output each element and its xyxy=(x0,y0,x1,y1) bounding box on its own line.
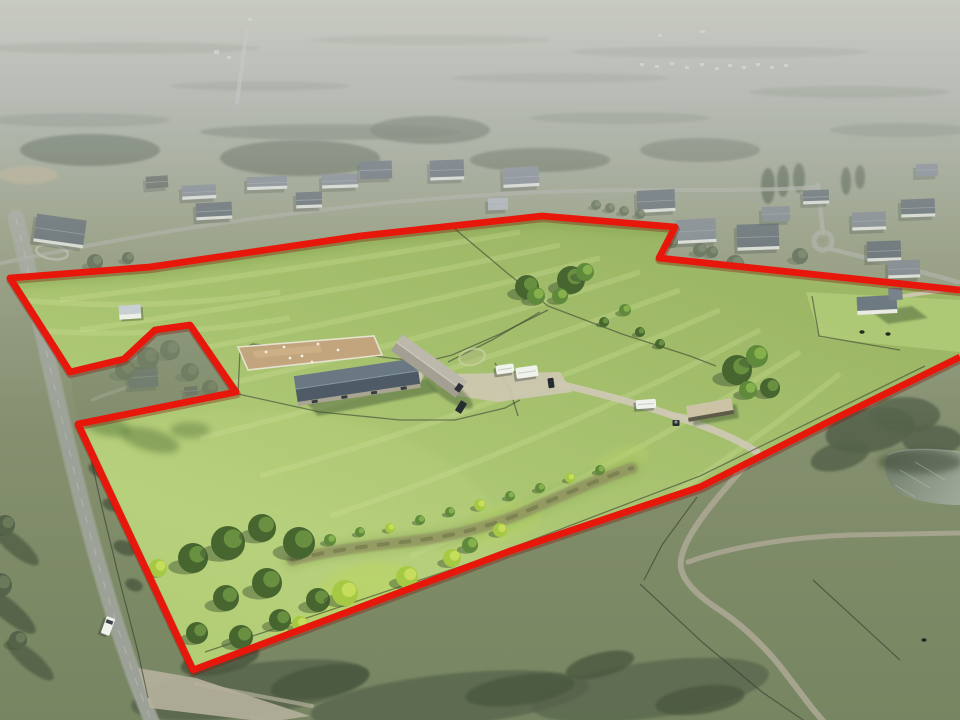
house xyxy=(244,176,288,194)
house xyxy=(849,211,887,234)
house xyxy=(734,223,780,254)
house xyxy=(672,218,716,248)
tractor xyxy=(673,420,680,426)
dirt-patch xyxy=(0,166,58,184)
house xyxy=(179,184,217,203)
house xyxy=(500,166,540,192)
house xyxy=(759,206,791,226)
house xyxy=(319,173,359,192)
house xyxy=(143,175,169,192)
animal xyxy=(885,332,890,335)
trailer xyxy=(633,399,656,412)
house xyxy=(193,202,233,225)
house xyxy=(427,159,465,184)
yard-shed xyxy=(119,304,144,322)
animal xyxy=(921,638,926,641)
house xyxy=(485,198,509,214)
house xyxy=(885,259,921,282)
listing-photo xyxy=(0,0,960,720)
aerial-photo xyxy=(0,0,960,720)
house xyxy=(800,190,830,209)
house xyxy=(293,192,323,213)
house xyxy=(898,198,936,221)
animal xyxy=(859,330,864,333)
cul-de-sac-island xyxy=(820,238,826,244)
house xyxy=(357,160,393,183)
house xyxy=(913,164,939,180)
